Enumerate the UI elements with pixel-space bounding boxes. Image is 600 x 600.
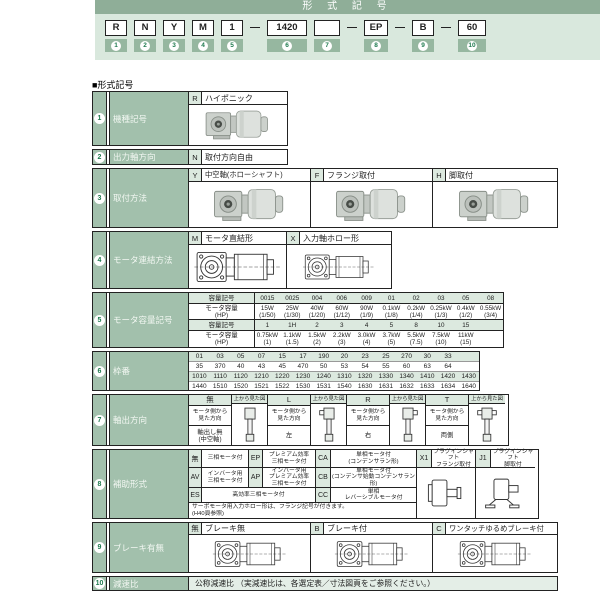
page-title: 形 式 記 号: [95, 0, 600, 14]
value-cell: 25W(1/30): [280, 304, 305, 319]
capacity-value-row: モータ容量 (HP) 0.75kW(1)1.1kW(1.5)1.5kW(2)2.…: [189, 331, 503, 347]
code-item-5: 1 5: [221, 20, 243, 52]
plug-in-shaft-flange-diagram: [417, 468, 476, 518]
value-cell: 1630: [355, 382, 376, 391]
code-box: N: [134, 20, 156, 36]
value-cell: 15W(1/50): [255, 304, 280, 319]
value-cell: 55: [375, 362, 396, 371]
value-cell: 03: [429, 293, 454, 303]
shaft-top-view-icon: [318, 406, 340, 444]
row-number: 4: [93, 232, 107, 288]
frame-number-line: 1440151015201521152215301531154016301631…: [189, 382, 479, 391]
value-cell: 8: [404, 320, 429, 330]
value-cell: 1634: [438, 382, 459, 391]
value-cell: 40W(1/20): [305, 304, 330, 319]
value-cell: 370: [210, 362, 231, 371]
value-cell: [478, 320, 503, 330]
code-box: 1420: [267, 20, 307, 36]
option-no-brake: 無ブレーキ無: [189, 523, 311, 572]
option-label: インバータ用 三相モータ付: [202, 468, 249, 488]
column-header: モータ容量 (HP): [189, 331, 255, 347]
option-no-shaft: 無 モータ側から 見た方向 軸出し無 (中空軸) 上から見た図: [189, 395, 268, 445]
value-cell: 1H: [280, 320, 305, 330]
value-cell: 1.1kW(1.5): [280, 331, 305, 347]
code-badge: 7: [314, 39, 340, 52]
row-number: 10: [93, 577, 107, 590]
value-cell: 3: [329, 320, 354, 330]
value-cell: 1430: [458, 372, 479, 381]
plug-in-shaft-leg-diagram: [476, 468, 535, 518]
dash: —: [347, 20, 357, 36]
code-badge: 2: [134, 39, 156, 52]
value-cell: 1320: [355, 372, 376, 381]
value-cell: 43: [251, 362, 272, 371]
value-cell: 01: [379, 293, 404, 303]
capacity-symbol-row: 容量記号 11H234581015: [189, 320, 503, 331]
shaft-top-view-icon: [239, 406, 261, 444]
code-cell: N: [189, 150, 202, 164]
row-label: 補助形式: [110, 450, 189, 518]
top-view-label: 上から見た図: [232, 395, 267, 404]
row-number: 2: [93, 150, 107, 164]
value-cell: 15: [272, 352, 293, 361]
value-cell: 470: [293, 362, 314, 371]
option-foot-mount: H脚取付: [433, 169, 557, 227]
row-motor-capacity: 5 モータ容量記号 容量記号 0015002500400600901020305…: [92, 292, 504, 348]
code-cell: 無: [189, 450, 202, 468]
code-cell: 無: [189, 395, 231, 406]
code-badge: 9: [412, 39, 434, 52]
motor-drawing: [189, 245, 286, 288]
option-input-hollow: X入力軸ホロー形: [287, 232, 391, 288]
row-label: モータ容量記号: [110, 293, 189, 347]
value-cell: 23: [355, 352, 376, 361]
value-cell: 0.25kW(1/3): [429, 304, 454, 319]
dash: —: [395, 20, 405, 36]
code-item-8: EP 8: [364, 20, 388, 52]
code-box: [314, 20, 340, 36]
value-cell: 02: [404, 293, 429, 303]
code-cell: AP: [249, 468, 263, 488]
code-item-6: 1420 6: [267, 20, 307, 52]
option-label: インバータ用 プレミアム効率 三相モータ付: [263, 468, 316, 488]
value-cell: 0.55kW(3/4): [478, 304, 503, 319]
value-cell: 1632: [396, 382, 417, 391]
shaft-diagram: [390, 404, 425, 445]
plug-in-shaft-leg-icon: [481, 477, 531, 509]
option-label: 単相モータ付 (コンデンサ始動コンデンサラン形): [331, 468, 417, 488]
shaft-top-view-icon: [476, 406, 498, 444]
section-label: ■形式記号: [92, 78, 133, 91]
row-motor-connection: 4 モータ連結方法 Mモータ直結形 X入力軸ホロー形: [92, 231, 392, 289]
row-number: 7: [93, 395, 107, 445]
code-item-10: 60 10: [458, 20, 486, 52]
row-brake: 9 ブレーキ有無 無ブレーキ無 Bブレーキ付 Cワンタッチゆるめブレーキ付: [92, 522, 558, 573]
frame-number-line: 0103050715171902023252703033: [189, 352, 479, 362]
option-label: ブレーキ付: [324, 523, 432, 534]
option-label: プレミアム効率 三相モータ付: [263, 450, 316, 468]
option-flange-mount: Fフランジ取付: [311, 169, 433, 227]
value-cell: 1240: [313, 372, 334, 381]
value-cell: 0.2kW(1/4): [404, 304, 429, 319]
model-code-panel: R 1 N 2 Y 3 M 4 1 5 — 1420 6 7 — EP 8 — …: [95, 14, 600, 60]
row-auxiliary-type: 8 補助形式 無 三相モータ付 EP プレミアム効率 三相モータ付 CA 単相モ…: [92, 449, 539, 519]
value-cell: 15: [453, 320, 478, 330]
code-cell: B: [311, 523, 324, 534]
option-label: 取付方向自由: [202, 150, 287, 164]
value-cell: 1531: [313, 382, 334, 391]
value-cell: 08: [478, 293, 503, 303]
value-cell: 40: [230, 362, 251, 371]
code-box: Y: [163, 20, 185, 36]
code-cell: M: [189, 232, 202, 244]
code-cell: AV: [189, 468, 202, 488]
code-cell: Y: [189, 169, 202, 181]
value-cell: 45: [272, 362, 293, 371]
row-label: 軸出方向: [110, 395, 189, 445]
row-number: 1: [93, 92, 107, 145]
motor-line-drawing-icon: [303, 247, 375, 287]
code-cell: EP: [249, 450, 263, 468]
value-cell: 54: [355, 362, 376, 371]
value-cell: [458, 352, 479, 361]
shaft-diagram: [311, 404, 346, 445]
capacity-value-row: モータ容量 (HP) 15W(1/50)25W(1/30)40W(1/20)60…: [189, 304, 503, 320]
capacity-symbol-row: 容量記号 001500250040060090102030508: [189, 293, 503, 304]
option-label: ワンタッチゆるめブレーキ付: [446, 523, 557, 534]
value-cell: 004: [305, 293, 330, 303]
code-cell: R: [347, 395, 389, 406]
row-machine-type: 1 機種記号 R ハイポニック: [92, 91, 288, 146]
column-header: モータ容量 (HP): [189, 304, 255, 319]
value-cell: 1420: [438, 372, 459, 381]
value-cell: 60: [396, 362, 417, 371]
motor-drawing: [287, 245, 391, 288]
value-cell: 4: [354, 320, 379, 330]
value-cell: 1.5kW(2): [305, 331, 330, 347]
row-shaft-output-direction: 7 軸出方向 無 モータ側から 見た方向 軸出し無 (中空軸) 上から見た図 L…: [92, 394, 509, 446]
option-label: 三相モータ付: [202, 450, 249, 468]
code-cell: CA: [316, 450, 331, 468]
row-label: 機種記号: [110, 92, 189, 145]
option-shaft-right: R モータ側から 見た方向 右 上から見た図: [347, 395, 426, 445]
value-cell: [478, 331, 503, 347]
shaft-diagram: [469, 404, 505, 445]
code-cell: H: [433, 169, 446, 181]
value-cell: 10: [429, 320, 454, 330]
code-cell: X1: [417, 450, 432, 468]
gearmotor-photo-icon: [455, 185, 535, 225]
row-number: 6: [93, 352, 107, 390]
code-cell: T: [426, 395, 468, 406]
code-cell: J1: [476, 450, 491, 468]
row-output-shaft-direction: 2 出力軸方向 N 取付方向自由: [92, 149, 288, 165]
code-item-7: 7: [314, 20, 340, 52]
code-item-1: R 1: [105, 20, 127, 52]
value-cell: 1110: [210, 372, 231, 381]
motor-drawing: [311, 535, 432, 572]
value-cell: 33: [438, 352, 459, 361]
code-cell: R: [189, 92, 202, 104]
row-number: 3: [93, 169, 107, 227]
row-frame-number: 6 枠番 0103050715171902023252703033 353704…: [92, 351, 480, 391]
view-note: モータ側から 見た方向: [268, 406, 310, 426]
value-cell: 006: [329, 293, 354, 303]
column-header: 容量記号: [189, 320, 255, 330]
value-cell: 01: [189, 352, 210, 361]
code-box: M: [192, 20, 214, 36]
value-cell: 1640: [458, 382, 479, 391]
option-label: 中空軸(ホローシャフト): [202, 169, 310, 181]
shaft-top-view-icon: [397, 406, 419, 444]
motor-line-drawing-icon: [324, 537, 420, 571]
code-badge: 6: [267, 39, 307, 52]
option-hollow-shaft: Y中空軸(ホローシャフト): [189, 169, 311, 227]
code-cell: X: [287, 232, 300, 244]
value-cell: 35: [189, 362, 210, 371]
row-label: ブレーキ有無: [110, 523, 189, 572]
value-cell: 05: [230, 352, 251, 361]
option-label: モータ直結形: [202, 232, 286, 244]
reduction-ratio-note: 公称減速比 （実減速比は、各選定表／寸法図頁をご参照ください。）: [189, 578, 557, 589]
code-badge: 4: [192, 39, 214, 52]
dash: —: [250, 20, 260, 36]
value-cell: 90W(1/9): [354, 304, 379, 319]
code-box: 1: [221, 20, 243, 36]
code-badge: 5: [221, 39, 243, 52]
code-item-4: M 4: [192, 20, 214, 52]
value-cell: 270: [396, 352, 417, 361]
value-cell: 1522: [272, 382, 293, 391]
value-cell: 1310: [334, 372, 355, 381]
option-label: ブレーキ無: [202, 523, 310, 534]
motor-line-drawing-icon: [447, 537, 543, 571]
value-cell: 1330: [375, 372, 396, 381]
code-badge: 8: [364, 39, 388, 52]
value-cell: 1520: [230, 382, 251, 391]
value-cell: 63: [417, 362, 438, 371]
value-cell: 11kW(15): [453, 331, 478, 347]
value-cell: 1410: [417, 372, 438, 381]
value-cell: 7.5kW(10): [429, 331, 454, 347]
value-cell: 5: [379, 320, 404, 330]
motor-photo: [311, 182, 432, 227]
option-shaft-both: T モータ側から 見た方向 両側 上から見た図: [426, 395, 505, 445]
row-label: モータ連結方法: [110, 232, 189, 288]
frame-number-line: 3537040434547050535455606364: [189, 362, 479, 372]
motor-line-drawing-icon: [202, 537, 298, 571]
option-motor-direct: Mモータ直結形: [189, 232, 287, 288]
direction-label: 右: [347, 426, 389, 445]
value-cell: 1220: [272, 372, 293, 381]
value-cell: 009: [354, 293, 379, 303]
value-cell: 50: [313, 362, 334, 371]
value-cell: 190: [313, 352, 334, 361]
value-cell: 1010: [189, 372, 210, 381]
value-cell: 03: [210, 352, 231, 361]
value-cell: 60W(1/12): [329, 304, 354, 319]
option-label: 高効率三相モータ付: [202, 488, 316, 503]
code-badge: 3: [163, 39, 185, 52]
option-one-touch-release-brake: Cワンタッチゆるめブレーキ付: [433, 523, 557, 572]
value-cell: 1631: [375, 382, 396, 391]
motor-photo: [189, 182, 310, 227]
value-cell: 3.0kW(4): [354, 331, 379, 347]
value-cell: 0.4kW(1/2): [453, 304, 478, 319]
value-cell: 1633: [417, 382, 438, 391]
servo-note: サーボモータ用入力ホロー形は、フランジ記号が付きます。 (H40頁参照): [189, 503, 417, 518]
value-cell: 1510: [210, 382, 231, 391]
view-note: モータ側から 見た方向: [426, 406, 468, 426]
row-label: 出力軸方向: [110, 150, 189, 164]
value-cell: 3.7kW(5): [379, 331, 404, 347]
code-cell: C: [433, 523, 446, 534]
frame-number-line: 1010111011201210122012301240131013201330…: [189, 372, 479, 382]
code-cell: CB: [316, 468, 331, 488]
motor-drawing: [189, 535, 310, 572]
row-label: 減速比: [110, 577, 189, 590]
value-cell: 30: [417, 352, 438, 361]
value-cell: 0015: [255, 293, 280, 303]
motor-photo: [433, 182, 557, 227]
value-cell: 1440: [189, 382, 210, 391]
motor-photo: [189, 105, 287, 145]
code-box: 60: [458, 20, 486, 36]
code-cell: CC: [316, 488, 331, 503]
code-item-2: N 2: [134, 20, 156, 52]
code-cell: 無: [189, 523, 202, 534]
value-cell: 1540: [334, 382, 355, 391]
value-cell: 1210: [251, 372, 272, 381]
column-header: 容量記号: [189, 293, 255, 303]
gearmotor-photo-icon: [210, 185, 290, 225]
value-cell: 2: [305, 320, 330, 330]
value-cell: 1120: [230, 372, 251, 381]
value-cell: 0.1kW(1/8): [379, 304, 404, 319]
option-label: 入力軸ホロー形: [300, 232, 391, 244]
row-number: 8: [93, 450, 107, 518]
direction-label: 軸出し無 (中空軸): [189, 426, 231, 445]
value-cell: [458, 362, 479, 371]
row-reduction-ratio: 10 減速比 公称減速比 （実減速比は、各選定表／寸法図頁をご参照ください。）: [92, 576, 558, 591]
option-label: プラグインシャフト フランジ取付: [432, 450, 476, 468]
code-item-3: Y 3: [163, 20, 185, 52]
value-cell: 0.75kW(1): [255, 331, 280, 347]
direction-label: 左: [268, 426, 310, 445]
value-cell: 17: [293, 352, 314, 361]
option-label: ハイポニック: [202, 92, 287, 104]
option-label: 単相 レバーシブルモータ付: [331, 488, 417, 503]
dash: —: [441, 20, 451, 36]
value-cell: 07: [251, 352, 272, 361]
view-note: モータ側から 見た方向: [189, 406, 231, 426]
top-view-label: 上から見た図: [469, 395, 505, 404]
code-cell: L: [268, 395, 310, 406]
option-label: フランジ取付: [324, 169, 432, 181]
value-cell: 20: [334, 352, 355, 361]
code-box: B: [412, 20, 434, 36]
top-view-label: 上から見た図: [311, 395, 346, 404]
value-cell: 1340: [396, 372, 417, 381]
motor-line-drawing-icon: [193, 247, 283, 287]
option-label: 単相モータ付 (コンデンサラン形): [331, 450, 417, 468]
code-badge: 10: [458, 39, 486, 52]
value-cell: 64: [438, 362, 459, 371]
value-cell: 5.5kW(7.5): [404, 331, 429, 347]
view-note: モータ側から 見た方向: [347, 406, 389, 426]
row-number: 9: [93, 523, 107, 572]
direction-label: 両側: [426, 426, 468, 445]
option-shaft-left: L モータ側から 見た方向 左 上から見た図: [268, 395, 347, 445]
row-mounting-method: 3 取付方法 Y中空軸(ホローシャフト) Fフランジ取付 H脚取付: [92, 168, 558, 228]
shaft-diagram: [232, 404, 267, 445]
plug-in-shaft-flange-icon: [421, 477, 471, 509]
code-badge: 1: [105, 39, 127, 52]
value-cell: 0025: [280, 293, 305, 303]
row-label: 取付方法: [110, 169, 189, 227]
value-cell: 2.2kW(3): [329, 331, 354, 347]
model-code-table: 1 機種記号 R ハイポニック 2 出力軸方向 N 取付方向自由 3 取付方法: [92, 91, 558, 591]
value-cell: 1: [255, 320, 280, 330]
code-cell: ES: [189, 488, 202, 503]
value-cell: 1521: [251, 382, 272, 391]
code-cell: F: [311, 169, 324, 181]
gearmotor-photo-icon: [332, 185, 412, 225]
option-label: プラグインシャフト 脚取付: [491, 450, 535, 468]
value-cell: 1530: [293, 382, 314, 391]
top-view-label: 上から見た図: [390, 395, 425, 404]
option-with-brake: Bブレーキ付: [311, 523, 433, 572]
motor-drawing: [433, 535, 557, 572]
code-item-9: B 9: [412, 20, 434, 52]
value-cell: 1230: [293, 372, 314, 381]
code-box: EP: [364, 20, 388, 36]
option-label: 脚取付: [446, 169, 557, 181]
value-cell: 53: [334, 362, 355, 371]
code-box: R: [105, 20, 127, 36]
gearmotor-photo-icon: [202, 107, 274, 143]
value-cell: 25: [375, 352, 396, 361]
row-label: 枠番: [110, 352, 189, 390]
row-number: 5: [93, 293, 107, 347]
value-cell: 05: [453, 293, 478, 303]
